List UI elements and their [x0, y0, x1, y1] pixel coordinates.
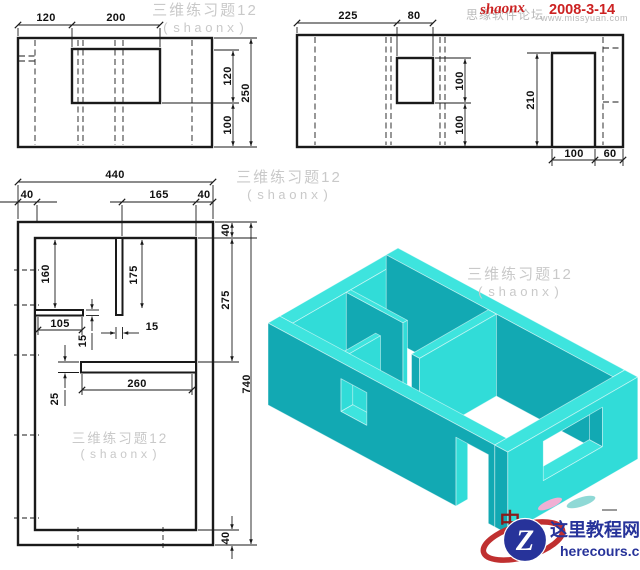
dim-label: 275 [220, 290, 232, 309]
watermark-author: (shaonx) [148, 21, 262, 38]
plan-view [0, 179, 257, 559]
signature-text: shaonx [480, 0, 526, 19]
logo-letter: Z [515, 524, 534, 557]
dim-label: 100 [454, 71, 466, 90]
front-view [15, 22, 257, 147]
watermark-title: 三维练习题12 [70, 430, 170, 448]
date-text: 2008-3-14 [549, 2, 615, 18]
dim-label: 100 [564, 148, 583, 160]
site-domain: herecours.com [560, 543, 640, 559]
dim-label: 200 [106, 12, 125, 24]
dim-label: 120 [222, 66, 234, 85]
dim-label: 250 [240, 83, 252, 102]
dim-label: 40 [21, 189, 34, 201]
dim-label: 40 [198, 189, 211, 201]
watermark: 三维练习题12 (shaonx) [70, 430, 170, 463]
feather-decoration [565, 493, 596, 511]
site-logo: 中 Z 这里教程网 herecours.com [462, 492, 640, 570]
watermark-author: (shaonx) [234, 188, 344, 205]
watermark-title: 三维练习题12 [234, 168, 344, 188]
side-view [294, 20, 626, 166]
dim-label: 80 [408, 10, 421, 22]
watermark-author: (shaonx) [70, 448, 170, 464]
dim-label: 15 [77, 335, 89, 348]
dim-label: 40 [220, 532, 232, 545]
dim-label: 740 [241, 374, 253, 393]
dim-label: 105 [50, 318, 69, 330]
dim-label: 100 [222, 115, 234, 134]
dim-label: 225 [338, 10, 357, 22]
dim-label: 15 [146, 321, 159, 333]
dim-label: 440 [105, 169, 124, 181]
watermark-title: 三维练习题12 [466, 265, 574, 285]
dim-label: 60 [604, 148, 617, 160]
dim-label: 40 [220, 224, 232, 237]
dim-label: 260 [127, 378, 146, 390]
dim-label: 165 [149, 189, 168, 201]
cad-tutorial-image: 120 200 120 100 250 225 80 100 100 210 1… [0, 0, 640, 570]
dim-label: 175 [128, 265, 140, 284]
site-name: 这里教程网 [550, 519, 640, 540]
dim-label: 25 [49, 393, 61, 406]
dim-label: 120 [36, 12, 55, 24]
dim-label: 210 [525, 90, 537, 109]
dim-label: 100 [454, 115, 466, 134]
watermark-title: 三维练习题12 [148, 1, 262, 21]
watermark-author: (shaonx) [466, 285, 574, 302]
dim-label: 160 [40, 264, 52, 283]
watermark: 三维练习题12 (shaonx) [466, 265, 574, 301]
watermark: 三维练习题12 (shaonx) [234, 168, 344, 204]
feather-decoration [536, 495, 563, 513]
watermark: 三维练习题12 (shaonx) [148, 1, 262, 37]
